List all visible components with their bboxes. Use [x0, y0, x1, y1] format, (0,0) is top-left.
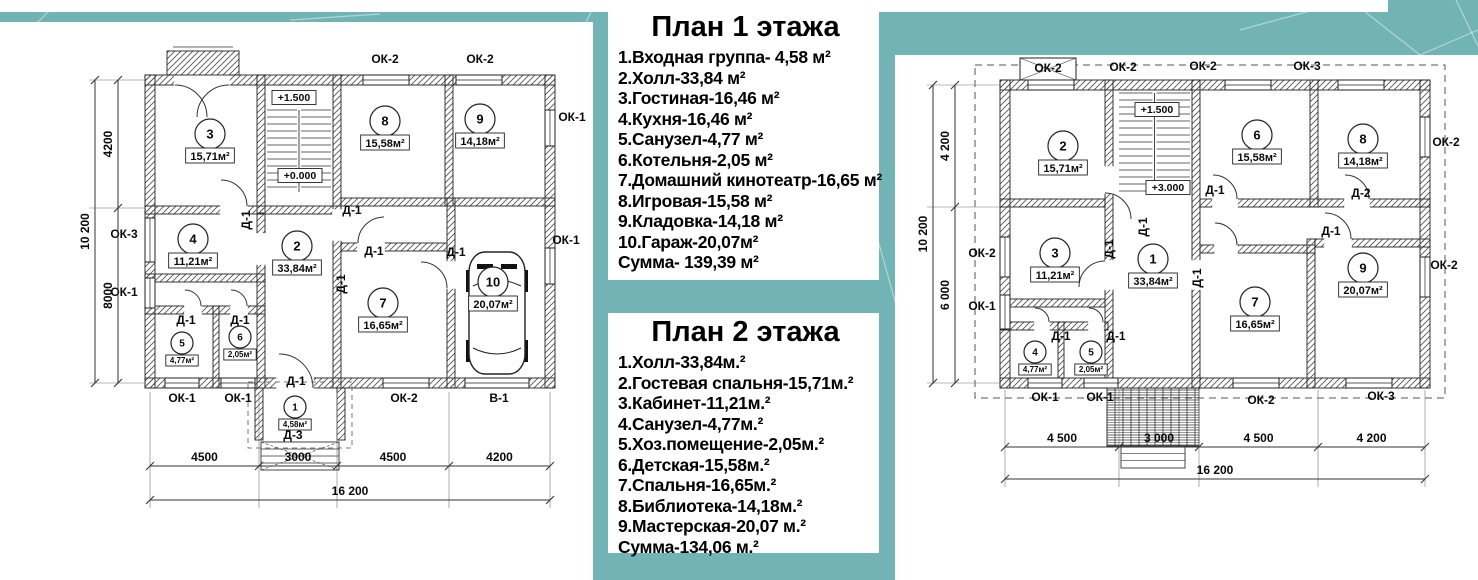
floor-plan-1-drawing: 315,71м²815,58м²914,18м²411,21м²233,84м²… [0, 22, 593, 580]
wall-mark: ОК-1 [1086, 390, 1114, 404]
door-opening [174, 74, 230, 86]
dim-label: 4 500 [1243, 431, 1273, 445]
room-number: 2 [293, 239, 300, 254]
legend-item: 5.Санузел-4,77 м² [618, 129, 873, 150]
level-value: +3.000 [1152, 182, 1185, 194]
legend-item: 9.Мастерская-20,07 м.² [618, 516, 873, 537]
legend-2-title: План 2 этажа [618, 316, 873, 349]
dim-label: 3000 [285, 450, 312, 464]
dim-label: 4 200 [1356, 431, 1386, 445]
wall-mark: Д-1 [239, 210, 253, 230]
room-area: 15,71м² [1043, 163, 1083, 175]
door-swing [197, 85, 229, 117]
dim-label: 4500 [380, 450, 407, 464]
room-area: 4,77м² [170, 356, 194, 365]
level-mark: +1.500 [272, 91, 316, 105]
legend-item: Сумма- 139,39 м² [618, 252, 873, 273]
room-marker: 814,18м² [1339, 124, 1388, 168]
legend-item: 10.Гараж-20,07м² [618, 232, 873, 253]
room-marker: 14,58м² [279, 396, 311, 430]
wall-mark: ОК-1 [558, 110, 586, 124]
room-area: 11,21м² [174, 256, 213, 268]
dim-label: 3 000 [1144, 431, 1174, 445]
wall-mark: Д-1 [176, 313, 196, 327]
wall-mark: Д-1 [1136, 217, 1150, 237]
room-number: 1 [292, 403, 298, 414]
legend-item: 7.Домашний кинотеатр-16,65 м² [618, 170, 873, 191]
legend-item: 3.Кабинет-11,21м.² [618, 393, 873, 414]
room-marker: 62,05м² [224, 326, 256, 360]
dim-total: 10 200 [78, 213, 92, 250]
door-opening [1034, 321, 1050, 331]
room-number: 7 [379, 296, 386, 311]
wall [1307, 239, 1315, 388]
room-number: 4 [1032, 348, 1038, 359]
level-value: +1.500 [1141, 104, 1174, 116]
wall-mark: ОК-2 [1109, 60, 1137, 74]
room-area: 14,18м² [460, 136, 500, 148]
door-opening [332, 209, 342, 241]
room-number: 6 [1253, 128, 1260, 143]
legend-1-list: 1.Входная группа- 4,58 м²2.Холл-33,84 м²… [618, 47, 873, 273]
room-number: 9 [476, 112, 483, 127]
room-number: 10 [486, 275, 500, 290]
level-mark: +3.000 [1146, 181, 1190, 195]
room-marker: 133,84м² [1129, 244, 1178, 288]
dim-label: 4 200 [938, 131, 952, 161]
dim-label: 6 000 [938, 280, 952, 310]
legend-item: 6.Детская-15,58м.² [618, 455, 873, 476]
legend-item: 6.Котельня-2,05 м² [618, 150, 873, 171]
room-area: 4,77м² [1023, 365, 1047, 374]
legend-item: Сумма-134,06 м.² [618, 537, 873, 558]
wall-mark: В-1 [489, 391, 509, 405]
door-swing [421, 262, 447, 288]
room-number: 5 [179, 339, 185, 350]
legend-item: 7.Спальня-16,65м.² [618, 475, 873, 496]
room-area: 16,65м² [363, 320, 403, 332]
door-swing [1089, 308, 1103, 322]
door-opening [446, 261, 456, 289]
wall [1000, 299, 1105, 307]
door-swing [175, 85, 207, 117]
dim-total: 10 200 [916, 215, 930, 252]
wall-mark: Д-1 [1205, 183, 1225, 197]
wall-mark: Д-1 [1321, 224, 1341, 238]
wall [1000, 80, 1010, 388]
room-number: 8 [381, 114, 388, 129]
wall-mark: Д-3 [283, 428, 303, 442]
wall-mark: Д-1 [334, 274, 348, 294]
room-marker: 920,07м² [1339, 253, 1388, 297]
wall-mark: ОК-1 [1031, 390, 1059, 404]
wall-mark: ОК-2 [1189, 59, 1217, 73]
door-opening [1214, 244, 1238, 254]
room-area: 20,07м² [473, 299, 513, 311]
door-swing [1079, 261, 1105, 287]
door-swing [1035, 308, 1049, 322]
wall-mark: Д-1 [1051, 329, 1071, 343]
room-number: 3 [1051, 246, 1058, 261]
room-number: 4 [189, 232, 197, 247]
wall-mark: Д-1 [1102, 239, 1116, 259]
legend-item: 2.Холл-33,84 м² [618, 68, 873, 89]
wall [447, 198, 455, 388]
wall [337, 388, 345, 440]
room-area: 33,84м² [1133, 276, 1173, 288]
dim-label: 4200 [101, 130, 115, 157]
entrance-canopy [167, 51, 239, 75]
wall-mark: Д-1 [364, 244, 384, 258]
level-mark: +1.500 [1135, 103, 1179, 117]
dim-label: 4500 [191, 450, 218, 464]
legend-floor-1: План 1 этажа 1.Входная группа- 4,58 м²2.… [608, 8, 879, 280]
room-area: 16,65м² [1235, 319, 1275, 331]
dim-total: 16 200 [1197, 463, 1234, 477]
room-number: 7 [1251, 295, 1258, 310]
legend-floor-2: План 2 этажа 1.Холл-33,84м.²2.Гостевая с… [608, 313, 879, 553]
level-value: +1.500 [278, 92, 311, 104]
door-swing [221, 180, 247, 206]
wall [145, 274, 265, 282]
door-opening [1088, 321, 1104, 331]
room-number: 3 [206, 127, 213, 142]
room-marker: 615,58м² [1233, 120, 1282, 164]
wall-mark: ОК-2 [390, 391, 418, 405]
wall-mark: Д-1 [1190, 268, 1204, 288]
floor-plan-2-panel: 215,71м²615,58м²814,18м²311,21м²133,84м²… [895, 55, 1478, 580]
wall-mark: ОК-2 [968, 246, 996, 260]
door-swing [358, 217, 384, 243]
floor-plan-2-drawing: 215,71м²615,58м²814,18м²311,21м²133,84м²… [895, 55, 1478, 580]
room-area: 14,18м² [1343, 156, 1383, 168]
room-number: 5 [1088, 348, 1094, 359]
room-area: 15,58м² [365, 138, 405, 150]
legend-item: 1.Холл-33,84м.² [618, 352, 873, 373]
dim-total: 16 200 [332, 484, 369, 498]
legend-item: 5.Хоз.помещение-2,05м.² [618, 434, 873, 455]
wall-mark: ОК-2 [1247, 393, 1275, 407]
door-opening [1324, 238, 1352, 248]
wall [1192, 80, 1200, 388]
wall-mark: ОК-2 [1034, 61, 1062, 75]
door-opening [1212, 198, 1238, 208]
room-marker: 215,71м² [1039, 131, 1088, 175]
room-area: 11,21м² [1036, 270, 1075, 282]
wall-mark: Д-1 [446, 245, 466, 259]
dim-label: 4 500 [1047, 431, 1077, 445]
room-marker: 44,77м² [1019, 341, 1051, 375]
wall-mark: ОК-3 [1367, 389, 1395, 403]
door-opening [256, 233, 266, 265]
legend-item: 1.Входная группа- 4,58 м² [618, 47, 873, 68]
room-area: 15,71м² [190, 151, 230, 163]
wall-mark: Д-2 [1351, 186, 1371, 200]
legend-2-list: 1.Холл-33,84м.²2.Гостевая спальня-15,71м… [618, 352, 873, 557]
door-swing [231, 290, 247, 306]
wall-mark: ОК-1 [968, 299, 996, 313]
wall-mark: ОК-1 [552, 233, 580, 247]
wall-mark: Д-1 [342, 203, 362, 217]
dim-label: 8000 [101, 282, 115, 309]
room-marker: 52,05м² [1075, 341, 1107, 375]
wall-mark: ОК-2 [371, 52, 399, 66]
legend-item: 2.Гостевая спальня-15,71м.² [618, 373, 873, 394]
wall-mark: ОК-1 [224, 391, 252, 405]
wall [257, 75, 265, 213]
legend-item: 8.Игровая-15,58 м² [618, 191, 873, 212]
wall [341, 243, 447, 251]
porch-steps [1121, 446, 1185, 468]
wall [1000, 199, 1105, 207]
room-marker: 716,65м² [1231, 287, 1280, 331]
door-swing [185, 290, 201, 306]
room-area: 2,05м² [228, 350, 252, 359]
room-area: 20,07м² [1343, 285, 1383, 297]
room-area: 2,05м² [1079, 365, 1103, 374]
room-number: 8 [1359, 132, 1366, 147]
door-swing [1215, 223, 1237, 245]
room-number: 2 [1059, 139, 1066, 154]
door-opening [1104, 166, 1114, 194]
room-number: 9 [1359, 261, 1366, 276]
legend-item: 9.Кладовка-14,18 м² [618, 211, 873, 232]
wall-mark: ОК-2 [1432, 135, 1460, 149]
wall [1310, 80, 1318, 207]
legend-item: 4.Санузел-4,77м.² [618, 414, 873, 435]
room-marker: 54,77м² [166, 332, 198, 366]
wall-mark: Д-1 [286, 374, 306, 388]
room-marker: 311,21м² [1031, 238, 1080, 282]
legend-item: 4.Кухня-16,46 м² [618, 109, 873, 130]
legend-item: 3.Гостиная-16,46 м² [618, 88, 873, 109]
room-number: 1 [1149, 252, 1156, 267]
door-opening [1104, 260, 1114, 290]
legend-1-title: План 1 этажа [618, 11, 873, 44]
room-marker: 315,71м² [186, 119, 235, 163]
floor-plan-1-panel: 315,71м²815,58м²914,18м²411,21м²233,84м²… [0, 22, 593, 580]
level-value: +0.000 [284, 170, 317, 182]
wall-mark: ОК-1 [168, 391, 196, 405]
room-number: 6 [237, 333, 243, 344]
room-marker: 716,65м² [359, 288, 408, 332]
room-area: 15,58м² [1237, 152, 1277, 164]
wall-mark: Д-1 [230, 313, 250, 327]
wall-mark: ОК-2 [466, 52, 494, 66]
room-marker: 411,21м² [169, 224, 218, 268]
wall-mark: ОК-3 [1293, 59, 1321, 73]
room-marker: 233,84м² [273, 231, 322, 275]
wall-mark: ОК-2 [1430, 258, 1458, 272]
level-mark: +0.000 [278, 169, 322, 183]
room-marker: 815,58м² [361, 106, 410, 150]
room-marker: 914,18м² [456, 104, 505, 148]
wall-mark: Д-1 [1106, 329, 1126, 343]
wall [445, 75, 453, 206]
legend-item: 8.Библиотека-14,18м.² [618, 496, 873, 517]
room-area: 33,84м² [277, 263, 317, 275]
page: 315,71м²815,58м²914,18м²411,21м²233,84м²… [0, 0, 1478, 580]
wall-mark: ОК-3 [110, 227, 138, 241]
dim-label: 4200 [486, 450, 513, 464]
wall [213, 306, 219, 388]
